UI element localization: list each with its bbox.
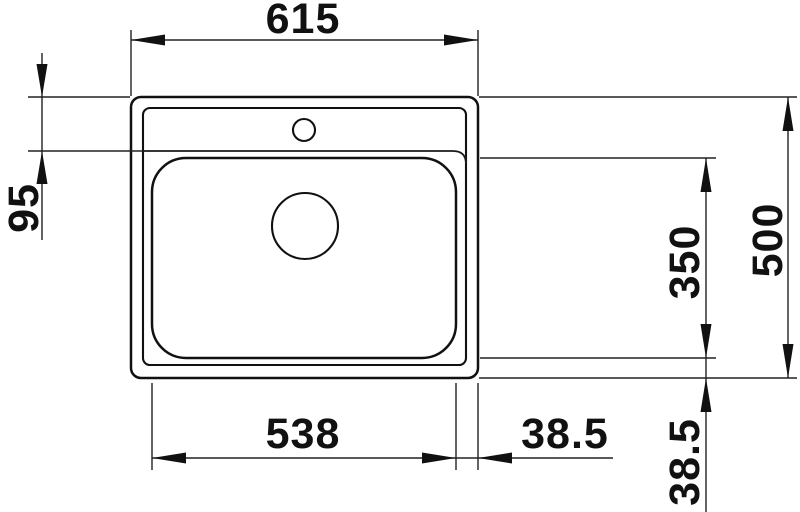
dim-label-rim-offset-bottom: 38.5 [661,418,709,506]
dim-label-bowl-width: 538 [266,410,341,458]
drain-hole [272,193,338,259]
dim-deck-depth: 95 [0,53,143,240]
technical-drawing-canvas: 615 95 500 350 [0,0,800,512]
arrowhead-left-icon [478,453,512,464]
arrowhead-down-icon [783,344,794,378]
extension-lines-left [28,97,143,151]
dim-label-rim-offset-right: 38.5 [521,410,609,458]
arrowhead-right-icon [444,35,478,46]
sink-inner-rim [143,108,466,365]
faucet-hole [293,119,315,141]
dim-bowl-depth: 350 [480,158,716,358]
arrowhead-left-icon [131,35,165,46]
arrowhead-right-icon [422,453,456,464]
dim-overall-width: 615 [131,0,478,96]
dim-label-deck-depth: 95 [0,183,48,233]
dim-label-bowl-depth: 350 [661,225,709,300]
arrowhead-left-icon [152,453,186,464]
sink-plan-view [131,97,478,378]
arrowhead-down-icon [37,64,48,97]
dim-label-overall-width: 615 [266,0,341,43]
arrowhead-up-icon [701,378,712,412]
arrowhead-up-icon [701,158,712,192]
sink-technical-drawing: 615 95 500 350 [0,0,800,512]
dim-bowl-width: 538 38.5 [152,383,613,470]
dim-rim-offset-bottom: 38.5 [661,358,712,512]
dim-overall-depth: 500 [479,97,797,378]
sink-outer-outline [131,97,478,378]
dim-label-overall-depth: 500 [744,203,792,278]
arrowhead-up-icon [37,151,48,184]
arrowhead-down-icon [701,324,712,358]
arrowhead-up-icon [783,97,794,131]
